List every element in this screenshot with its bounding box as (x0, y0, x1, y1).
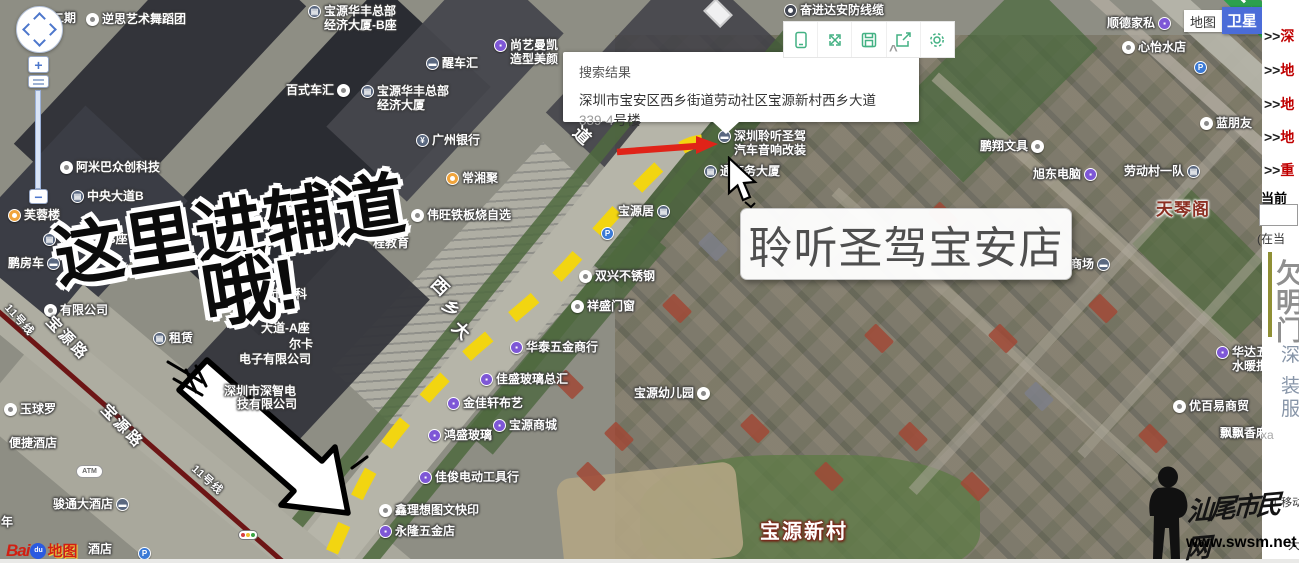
map-poi-label[interactable]: 双兴不锈钢 (579, 269, 655, 283)
popup-title: 搜索结果 (579, 62, 903, 81)
map-poi-label[interactable]: 技有限公司 (237, 397, 297, 411)
map-poi-label[interactable]: 祥盛门窗 (571, 299, 635, 313)
bag-icon: ▪ (1216, 346, 1229, 359)
zoom-in-button[interactable]: + (28, 56, 49, 73)
build-icon: ▤ (71, 190, 84, 203)
build-icon: ▤ (1187, 165, 1200, 178)
dot-icon (1031, 140, 1044, 153)
map-poi-label[interactable]: 顺德家私▪ (1107, 16, 1171, 30)
sidebar-note: (在当 (1257, 230, 1285, 247)
map-poi-label[interactable]: 常湘聚 (446, 171, 498, 185)
screenshot-button[interactable] (784, 22, 817, 57)
map-poi-label[interactable]: 电子有限公司 (239, 352, 311, 366)
sidebar-input[interactable] (1259, 204, 1298, 226)
map-poi-label[interactable]: 逆思艺术舞蹈团 (86, 12, 186, 26)
map-poi-label[interactable]: ¥广州银行 (416, 133, 480, 147)
park-icon: P (601, 227, 614, 240)
map-area-label: 11号线 (188, 463, 225, 498)
bag-icon: ▪ (1158, 17, 1171, 30)
map-poi-label[interactable]: ▪金佳轩布艺 (447, 396, 523, 410)
bag-icon: ▪ (480, 373, 493, 386)
map-poi-label[interactable]: 阿米巴众创科技 (60, 160, 160, 174)
sidebar-link[interactable]: >>深 (1264, 26, 1294, 46)
map-poi-label[interactable]: ▤通商务大厦 (704, 164, 780, 178)
map-poi-label[interactable]: 蓝朋友 (1200, 116, 1252, 130)
collapse-chevron-icon[interactable]: ^ (889, 42, 898, 59)
map-poi-label[interactable]: 便捷酒店 (9, 436, 57, 450)
map-poi-label[interactable]: ▪尚艺曼凯造型美颜 (494, 38, 558, 66)
pan-right-icon[interactable] (44, 23, 57, 36)
screenshot-icon (791, 30, 811, 50)
dot-icon (1200, 117, 1213, 130)
page-bottom-strip (0, 559, 1299, 563)
map-area-label: 西 (426, 274, 452, 300)
map-poi-label[interactable]: ▬醒车汇 (426, 56, 478, 70)
map-poi-label[interactable]: 年 (1, 515, 13, 529)
settings-button[interactable] (920, 22, 954, 57)
settings-icon (927, 30, 947, 50)
zoom-slider-thumb[interactable] (28, 75, 49, 88)
map-poi-label[interactable]: ▪华泰五金商行 (510, 340, 598, 354)
bag-icon: ▪ (447, 397, 460, 410)
map-poi-icon[interactable]: P (138, 546, 151, 560)
dot-icon (379, 504, 392, 517)
dot-icon (86, 13, 99, 26)
baidu-map-screenshot: 二期逆思艺术舞蹈团▤宝源华丰总部经济大厦-B座▪尚艺曼凯造型美颜▬醒车汇百式车汇… (0, 0, 1299, 563)
map-poi-label[interactable]: 旭东电脑▪ (1033, 167, 1097, 181)
bag-icon: ▪ (494, 39, 507, 52)
map-mode-button[interactable]: 地图 (1184, 10, 1222, 32)
bag-icon: ▪ (1084, 168, 1097, 181)
sidebar-link[interactable]: >>地 (1264, 60, 1294, 80)
map-poi-label[interactable]: ▤中央大道B (71, 189, 144, 203)
build-icon: ▤ (308, 5, 321, 18)
dot-icon (1122, 41, 1135, 54)
map-area-label: 天琴阁 (1156, 200, 1210, 220)
map-poi-label[interactable]: ▪华达五金水暖批发 (1216, 345, 1262, 373)
dark-icon (784, 4, 797, 17)
pan-down-icon[interactable] (33, 34, 46, 47)
sidebar-link[interactable]: >>地 (1264, 94, 1294, 114)
baidu-logo-text: Bai (6, 541, 29, 561)
baidu-maps-logo: Bai du 地图 (6, 540, 77, 561)
map-poi-label[interactable]: 宝源幼儿园 (634, 386, 710, 400)
build-icon: ▤ (361, 85, 374, 98)
map-poi-label[interactable]: 骏通大酒店▬ (53, 497, 129, 511)
popup-address: 深圳市宝安区西乡街道劳动社区宝源新村西乡大道339-4号楼 (579, 89, 903, 129)
map-poi-label[interactable]: 百式车汇 (286, 83, 350, 97)
map-poi-label[interactable]: 鹏房车▬ (8, 256, 60, 270)
satellite-mode-button[interactable]: 卫星 (1222, 7, 1262, 34)
map-poi-label[interactable]: 鹏翔文具 (980, 139, 1044, 153)
pan-up-icon[interactable] (33, 12, 46, 25)
map-poi-label[interactable]: 玉球罗 (4, 402, 56, 416)
map-poi-label[interactable]: ▪佳俊电动工具行 (419, 470, 519, 484)
map-poi-label[interactable]: 酒店 (88, 542, 112, 556)
map-poi-label[interactable]: 飘飘香麻辣 (1220, 426, 1262, 440)
map-poi-label[interactable]: 奋进达安防线缆 (784, 3, 884, 17)
map-poi-label[interactable]: 宝源居▤ (618, 204, 670, 218)
traffic-light-icon (238, 530, 258, 540)
map-area-label: 11号线 (1, 302, 36, 339)
bag-icon: ▪ (379, 525, 392, 538)
hotel-icon: ▬ (116, 498, 129, 511)
dot-icon (60, 161, 73, 174)
zoom-out-button[interactable]: − (29, 189, 48, 204)
pan-left-icon[interactable] (22, 23, 35, 36)
fullscreen-icon (825, 30, 845, 50)
map-poi-label[interactable]: ▤宝源华丰总部经济大厦 (361, 84, 449, 112)
bag-icon: ▪ (428, 429, 441, 442)
dot-icon (4, 403, 17, 416)
map-poi-label[interactable]: 商场▬ (1070, 257, 1110, 271)
zoom-slider-track[interactable] (35, 90, 41, 189)
baidu-paw-icon: du (30, 543, 46, 559)
search-result-popup: 搜索结果 深圳市宝安区西乡街道劳动社区宝源新村西乡大道339-4号楼 (563, 52, 919, 122)
sidebar-accent-bar (1268, 252, 1272, 337)
dot-icon (571, 300, 584, 313)
dot-icon (579, 270, 592, 283)
build-icon: ▤ (657, 205, 670, 218)
dot-icon (337, 84, 350, 97)
store-name-text: 聆听圣驾宝安店 (749, 212, 1064, 276)
bag-icon: ▪ (419, 471, 432, 484)
park-icon: P (1194, 61, 1207, 74)
map-poi-label[interactable]: ▪宝源商城 (493, 418, 557, 432)
sidebar-text-char: 服 (1281, 394, 1299, 421)
map-poi-label[interactable]: 尔卡 (289, 337, 313, 351)
food-icon (8, 209, 21, 222)
food-icon (446, 172, 459, 185)
bank-icon: ¥ (416, 134, 429, 147)
map-poi-label[interactable]: 心怡水店 (1122, 40, 1186, 54)
hotel-icon: ▬ (1097, 258, 1110, 271)
dot-icon (1173, 400, 1186, 413)
bag-icon: ▪ (493, 419, 506, 432)
baidu-map-text: 地图 (47, 540, 77, 561)
map-poi-icon[interactable]: P (1194, 60, 1207, 74)
sidebar-fragment-1: 1.移动 (1272, 494, 1299, 510)
map-poi-label[interactable]: 劳动村一队▤ (1124, 164, 1200, 178)
sidebar-text-char: 深 (1281, 340, 1299, 367)
map-poi-label[interactable]: 伟旺铁板烧自选 (411, 208, 511, 222)
sidebar-fragment-2: 大 (1288, 536, 1299, 553)
fullscreen-button[interactable] (817, 22, 851, 57)
pan-control[interactable] (16, 6, 63, 53)
map-poi-label[interactable]: ▪佳盛玻璃总汇 (480, 372, 568, 386)
sidebar-link[interactable]: >>地 (1264, 127, 1294, 147)
dot-icon (411, 209, 424, 222)
map-poi-label[interactable]: ▪鸿盛玻璃 (428, 428, 492, 442)
map-area-label: 宝源新村 (760, 521, 848, 545)
car-icon: ▬ (426, 57, 439, 70)
dot-icon (697, 387, 710, 400)
save-button[interactable] (851, 22, 885, 57)
sidebar-tiny-text: xa (1261, 428, 1274, 442)
save-icon (859, 30, 879, 50)
map-poi-label[interactable]: ▤宝源华丰总部经济大厦-B座 (308, 4, 397, 32)
bag-icon: ▪ (510, 341, 523, 354)
atm-icon[interactable]: ATM (76, 465, 103, 478)
map-area-label: 大 (447, 318, 473, 344)
map-poi-label[interactable]: ▪永隆五金店 (379, 524, 455, 538)
sidebar-link[interactable]: >>重 (1264, 160, 1294, 180)
map-area-label: 宝源路 (97, 401, 147, 452)
map-toolbar (783, 21, 955, 58)
map-poi-icon[interactable]: P (601, 226, 614, 240)
map-poi-label[interactable]: 优百易商贸 (1173, 399, 1249, 413)
build-icon: ▤ (704, 165, 717, 178)
map-canvas[interactable]: 二期逆思艺术舞蹈团▤宝源华丰总部经济大厦-B座▪尚艺曼凯造型美颜▬醒车汇百式车汇… (0, 0, 1262, 563)
map-poi-label[interactable]: 鑫理想图文快印 (379, 503, 479, 517)
store-name-tooltip: 聆听圣驾宝安店 (740, 208, 1072, 280)
